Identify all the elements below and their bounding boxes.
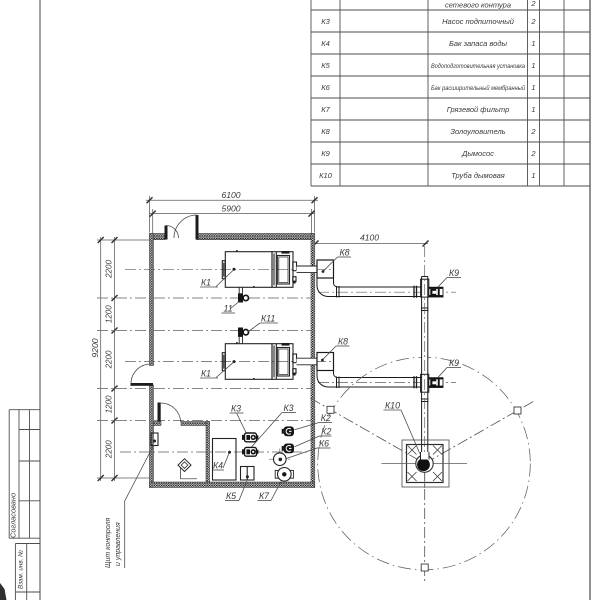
- svg-text:К3: К3: [231, 404, 241, 414]
- svg-text:К8: К8: [340, 248, 350, 258]
- svg-text:К8: К8: [338, 337, 348, 347]
- svg-text:5900: 5900: [221, 203, 240, 213]
- svg-text:2: 2: [530, 127, 536, 136]
- svg-text:К10: К10: [319, 171, 333, 180]
- svg-text:11: 11: [224, 304, 233, 314]
- svg-text:и управления: и управления: [115, 522, 122, 566]
- svg-text:1: 1: [531, 105, 535, 114]
- svg-text:К7: К7: [321, 105, 330, 114]
- svg-text:К3: К3: [284, 403, 294, 413]
- svg-text:Бак расширительный мембранный: Бак расширительный мембранный: [431, 84, 525, 92]
- svg-text:Водоподготовительная установка: Водоподготовительная установка: [431, 62, 525, 70]
- svg-text:6100: 6100: [221, 190, 240, 200]
- svg-text:К1: К1: [201, 278, 211, 288]
- svg-text:К10: К10: [385, 401, 400, 411]
- svg-text:1: 1: [531, 83, 535, 92]
- svg-text:К7: К7: [259, 491, 270, 501]
- svg-text:К6: К6: [319, 439, 329, 449]
- svg-text:К4: К4: [213, 461, 223, 471]
- svg-text:2200: 2200: [105, 260, 114, 279]
- svg-text:1200: 1200: [105, 305, 114, 323]
- svg-text:К4: К4: [321, 39, 330, 48]
- svg-text:1200: 1200: [105, 395, 114, 413]
- svg-text:Золоуловитель: Золоуловитель: [450, 127, 505, 136]
- svg-text:Труба дымовая: Труба дымовая: [451, 171, 505, 180]
- svg-text:2200: 2200: [105, 440, 114, 459]
- svg-text:2: 2: [530, 149, 536, 158]
- svg-text:К11: К11: [261, 314, 275, 324]
- svg-text:9200: 9200: [90, 338, 100, 357]
- svg-text:2200: 2200: [105, 350, 114, 369]
- svg-text:К5: К5: [226, 491, 236, 501]
- svg-text:Насос подпиточный: Насос подпиточный: [442, 17, 515, 26]
- svg-text:К8: К8: [321, 127, 330, 136]
- svg-text:Согласовано: Согласовано: [9, 493, 18, 538]
- svg-text:Бак запаса воды: Бак запаса воды: [449, 39, 508, 48]
- svg-text:К9: К9: [321, 149, 330, 158]
- svg-text:Грязевой фильтр: Грязевой фильтр: [447, 105, 510, 114]
- svg-text:К9: К9: [449, 268, 459, 278]
- svg-text:2: 2: [530, 17, 536, 26]
- svg-text:1: 1: [531, 171, 535, 180]
- svg-text:Взам. инв. №: Взам. инв. №: [18, 550, 25, 589]
- svg-text:К1: К1: [201, 369, 211, 379]
- svg-text:сетевого контура: сетевого контура: [445, 1, 511, 10]
- svg-text:Дымосос: Дымосос: [461, 149, 494, 158]
- svg-text:2: 2: [530, 0, 536, 8]
- svg-text:1: 1: [531, 61, 535, 70]
- svg-text:К5: К5: [321, 61, 330, 70]
- svg-text:1: 1: [531, 39, 535, 48]
- svg-text:К6: К6: [321, 83, 330, 92]
- svg-text:К3: К3: [321, 17, 330, 26]
- svg-text:Щит контроля: Щит контроля: [105, 517, 112, 568]
- svg-text:4100: 4100: [360, 233, 379, 243]
